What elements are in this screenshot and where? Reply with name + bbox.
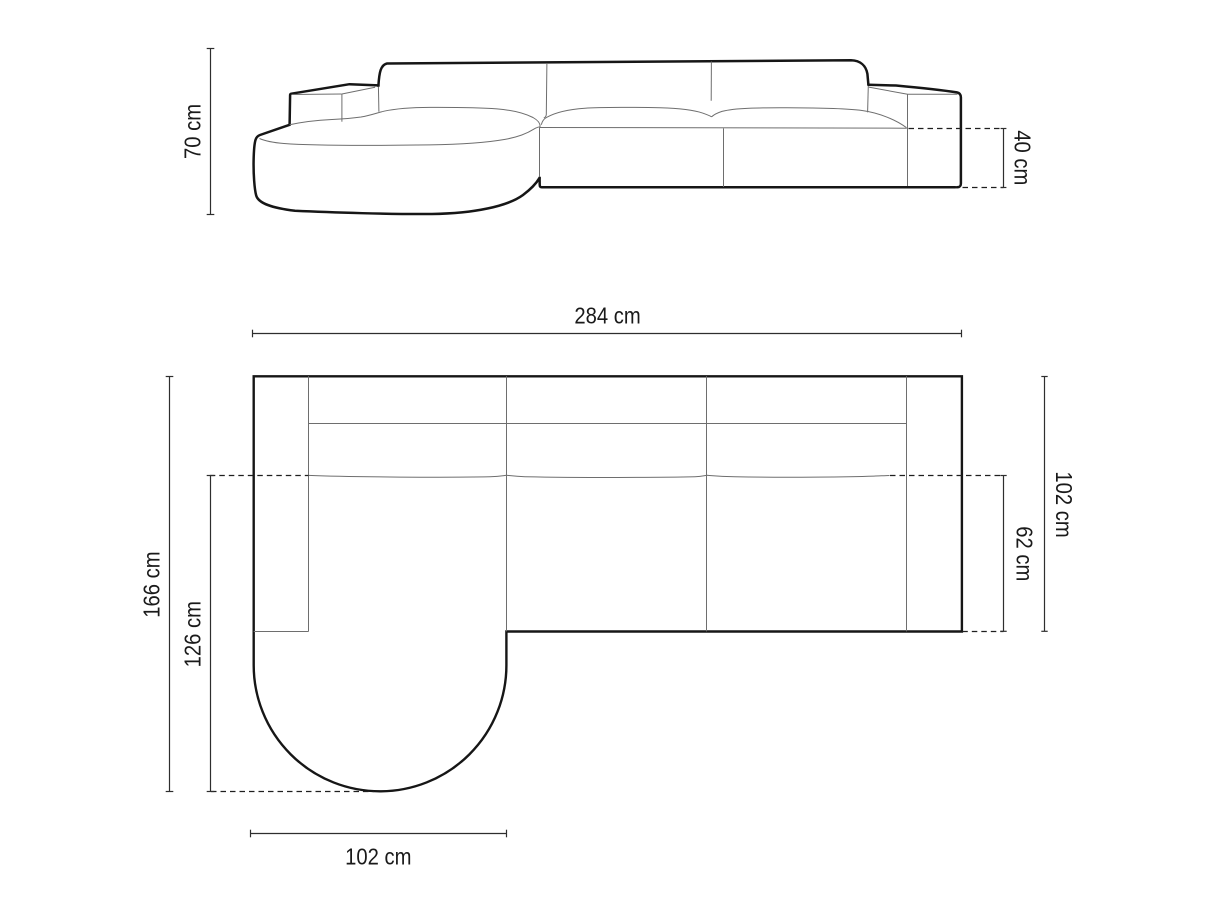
svg-text:70 cm: 70 cm [179,104,206,159]
svg-text:166 cm: 166 cm [138,551,165,617]
svg-text:62 cm: 62 cm [1011,526,1038,581]
svg-text:40 cm: 40 cm [1009,130,1036,185]
svg-text:126 cm: 126 cm [179,601,206,667]
svg-text:284 cm: 284 cm [574,302,640,329]
svg-text:102 cm: 102 cm [1051,471,1078,537]
svg-text:102 cm: 102 cm [345,843,411,870]
